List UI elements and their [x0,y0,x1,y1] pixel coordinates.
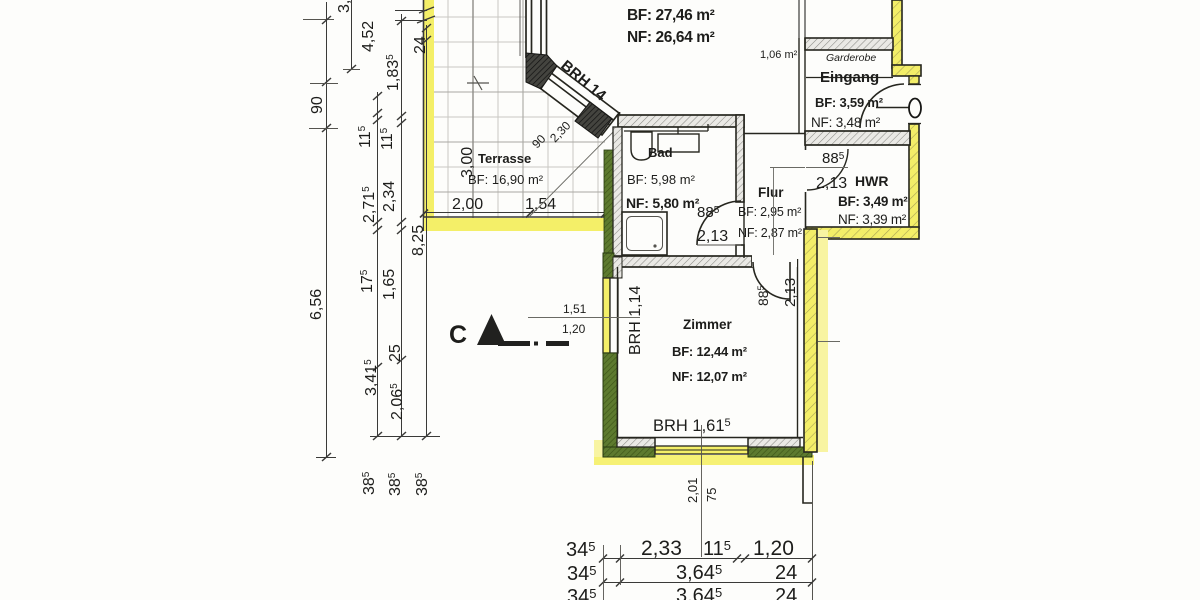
svg-text:Flur: Flur [758,185,784,200]
svg-text:2,13: 2,13 [782,278,799,307]
svg-text:1,20: 1,20 [753,537,794,560]
svg-text:75: 75 [704,488,719,502]
svg-text:BF: 3,49 m²: BF: 3,49 m² [838,194,908,209]
svg-text:NF: 2,87 m²: NF: 2,87 m² [738,226,802,240]
svg-text:1,06 m²: 1,06 m² [760,49,798,61]
svg-text:BF: 2,95 m²: BF: 2,95 m² [738,205,801,219]
svg-text:3,645: 3,645 [676,585,722,600]
svg-text:2,13: 2,13 [816,175,847,192]
svg-text:NF: 3,48 m²: NF: 3,48 m² [811,115,881,130]
svg-text:1,54: 1,54 [525,196,556,213]
svg-text:C: C [449,321,467,349]
svg-text:1,51: 1,51 [563,302,587,316]
svg-text:2,33: 2,33 [641,537,682,560]
svg-text:1,65: 1,65 [381,269,398,300]
svg-text:Garderobe: Garderobe [826,52,876,64]
svg-text:BF: 5,98 m²: BF: 5,98 m² [627,172,696,187]
svg-text:Bad: Bad [648,145,673,160]
svg-text:1,20: 1,20 [562,322,586,336]
svg-text:24: 24 [412,36,429,54]
svg-text:8,25: 8,25 [410,225,427,256]
svg-text:Terrasse: Terrasse [478,151,531,166]
svg-text:3,: 3, [336,0,353,13]
svg-text:BRH 1,14: BRH 1,14 [627,286,644,355]
svg-text:345: 345 [567,586,596,600]
svg-text:24: 24 [775,562,797,584]
svg-text:NF: 3,39 m²: NF: 3,39 m² [838,212,907,227]
svg-text:BF: 27,46 m²: BF: 27,46 m² [627,7,715,24]
svg-text:90: 90 [309,96,326,114]
svg-text:BF: 12,44 m²: BF: 12,44 m² [672,344,748,359]
svg-text:Eingang: Eingang [820,69,879,86]
svg-text:4,52: 4,52 [360,21,377,52]
svg-text:2,34: 2,34 [381,181,398,212]
svg-text:NF: 12,07 m²: NF: 12,07 m² [672,369,748,384]
svg-text:HWR: HWR [855,173,888,189]
svg-text:24: 24 [775,585,797,600]
svg-text:NF: 26,64 m²: NF: 26,64 m² [627,29,715,46]
svg-text:NF: 5,80 m²: NF: 5,80 m² [626,195,700,211]
svg-text:Zimmer: Zimmer [683,317,733,332]
svg-text:BF: 16,90 m²: BF: 16,90 m² [468,172,544,187]
svg-text:2,01: 2,01 [685,478,700,503]
svg-text:2,00: 2,00 [452,196,483,213]
svg-text:3,00: 3,00 [459,147,476,178]
svg-text:25: 25 [387,344,404,362]
svg-text:2,13: 2,13 [697,228,728,245]
svg-text:BRH 1,615: BRH 1,615 [653,417,731,435]
svg-text:6,56: 6,56 [308,289,325,320]
